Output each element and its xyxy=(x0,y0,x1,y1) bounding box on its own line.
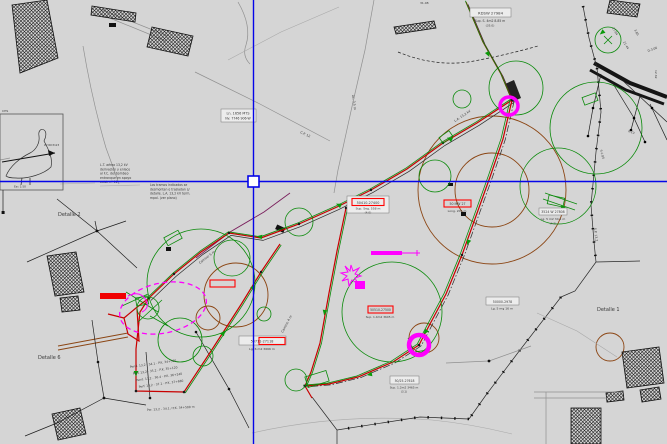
note-right-block: Los tramos indicados se desmontan o tras… xyxy=(150,183,190,200)
svg-text:Per. 13,2 - 34.1 / P.K. 34+500: Per. 13,2 - 34.1 / P.K. 34+500 m xyxy=(147,405,195,412)
svg-text:Lg. 5 mg 16 m: Lg. 5 mg 16 m xyxy=(491,307,513,311)
bird-detail-box: CHS W/ RD3123 Esc 1:50 xyxy=(0,109,63,214)
utility-line-purple xyxy=(196,193,290,258)
svg-text:50 MW 27: 50 MW 27 xyxy=(449,202,465,206)
svg-text:Nv. 7746 906-W: Nv. 7746 906-W xyxy=(225,117,251,121)
svg-text:3524 W 27808: 3524 W 27808 xyxy=(541,210,564,214)
detail-label: Detalle 1 xyxy=(597,307,620,313)
svg-text:Camino 4 m: Camino 4 m xyxy=(280,315,293,334)
bird-note: W/ RD3123 xyxy=(44,143,59,147)
svg-text:(4.0): (4.0) xyxy=(365,211,372,215)
corner-label: CHS xyxy=(2,109,8,113)
svg-text:Ln. 1656 MTS: Ln. 1656 MTS xyxy=(226,112,249,116)
buildings-hatched xyxy=(12,0,664,444)
terrain-paths xyxy=(0,0,538,434)
drawing-canvas[interactable]: Detalle 2 Detalle 6 Detalle 1 Ln. 1656 M… xyxy=(0,0,667,444)
building-midleft xyxy=(47,252,84,296)
svg-text:50410-27400: 50410-27400 xyxy=(357,201,380,205)
note-bottom-rows: Pend. 13,2 - 34.1 - P.K. 34+500 Perf. 13… xyxy=(130,358,184,390)
svg-text:Sup. S. 4m2 8.85 m: Sup. S. 4m2 8.85 m xyxy=(475,19,506,23)
svg-text:D-3.06: D-3.06 xyxy=(647,46,658,53)
svg-text:50000-2978: 50000-2978 xyxy=(493,300,512,304)
arrowhead xyxy=(48,150,55,156)
svg-text:Lg. 5 m2 34.1 m: Lg. 5 m2 34.1 m xyxy=(541,217,566,221)
svg-text:21.44: 21.44 xyxy=(622,41,630,51)
svg-text:C.P. 12: C.P. 12 xyxy=(300,130,311,138)
detail-label: Detalle 6 xyxy=(38,355,61,361)
pickbox[interactable] xyxy=(248,176,259,187)
building-bottomright xyxy=(622,347,664,388)
magenta-square xyxy=(355,281,365,289)
svg-text:RDSW 27984: RDSW 27984 xyxy=(478,11,504,16)
svg-text:(4.2): (4.2) xyxy=(550,222,557,226)
svg-text:50/25-27618: 50/25-27618 xyxy=(395,379,415,383)
building-bottomleft xyxy=(52,408,86,440)
bird-outline xyxy=(6,129,52,178)
red-arrow-bar xyxy=(100,293,126,299)
svg-text:L.A. 13,2 kV: L.A. 13,2 kV xyxy=(453,109,472,123)
cad-viewport[interactable]: Detalle 2 Detalle 6 Detalle 1 Ln. 1656 M… xyxy=(0,0,667,444)
svg-text:S-1.85: S-1.85 xyxy=(599,149,605,159)
detail2-lines xyxy=(27,199,137,268)
svg-text:31.08: 31.08 xyxy=(420,1,429,5)
svg-text:50510-27500: 50510-27500 xyxy=(370,308,391,312)
svg-text:12.62: 12.62 xyxy=(654,70,658,79)
crosshair-cursor[interactable] xyxy=(0,0,667,444)
building-topleft xyxy=(12,0,58,73)
svg-text:Long. 204 m: Long. 204 m xyxy=(448,209,467,213)
svg-text:(3.1): (3.1) xyxy=(401,390,407,394)
svg-text:3.85: 3.85 xyxy=(633,29,640,37)
svg-text:(35.0): (35.0) xyxy=(486,24,495,28)
magenta-bar xyxy=(371,251,402,255)
svg-text:Sup. 1.4m2 3605 m: Sup. 1.4m2 3605 m xyxy=(366,315,395,319)
svg-text:K-13: K-13 xyxy=(628,129,636,135)
svg-text:27.64: 27.64 xyxy=(611,27,619,37)
detail-label: Detalle 2 xyxy=(58,212,81,218)
svg-text:mpal. (ver plano): mpal. (ver plano) xyxy=(150,196,177,200)
bird-scale: Esc 1:50 xyxy=(14,185,26,189)
